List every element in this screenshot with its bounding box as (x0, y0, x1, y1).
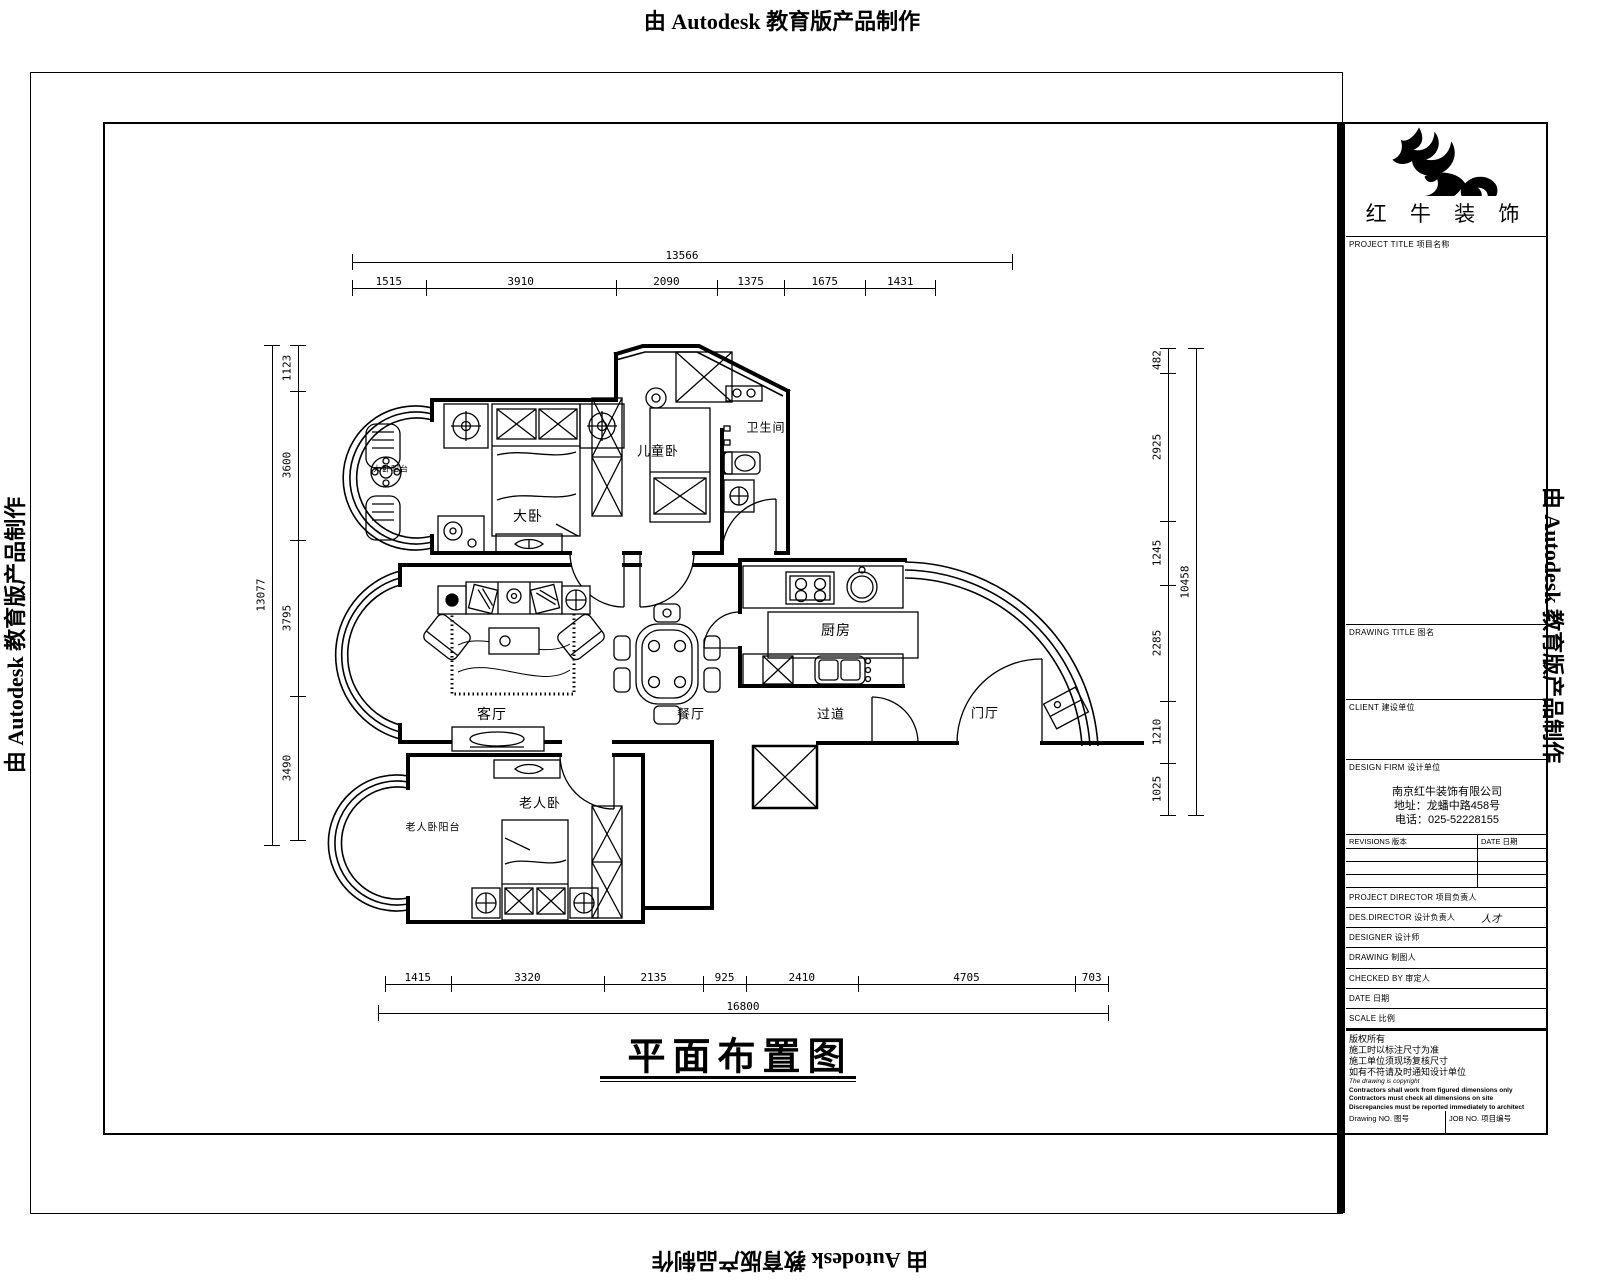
autodesk-stamp-bottom: 由 Autodesk 教育版产品制作 (652, 1246, 928, 1278)
room-label: 客厅 (477, 704, 507, 724)
dimension-tick (935, 280, 936, 296)
note-line: 施工时以标注尺寸为准 (1349, 1045, 1545, 1056)
dimension-value: 3600 (281, 452, 294, 479)
dimension-tick (1160, 763, 1176, 764)
personnel-row: DRAWING 制图人 (1346, 948, 1548, 968)
job-no-label: JOB NO. 项目编号 (1446, 1111, 1548, 1135)
dimension-tick (378, 1005, 379, 1021)
dimension-line (298, 345, 299, 840)
dimension-tick (1160, 815, 1176, 816)
entrance-fittings (1044, 687, 1089, 729)
personnel-label: PROJECT DIRECTOR 项目负责人 (1349, 892, 1477, 903)
dimension-tick (1160, 701, 1176, 702)
room-label: 大卧 (513, 506, 543, 526)
dimension-tick (1160, 521, 1176, 522)
dim-left-segments: 1123360037953490 (288, 345, 308, 840)
dimension-value: 1515 (376, 275, 403, 288)
personnel-label: DATE 日期 (1349, 993, 1389, 1004)
dimension-tick (290, 840, 306, 841)
client-label: CLIENT 建设单位 (1346, 700, 1548, 715)
dimension-line (272, 345, 273, 845)
drawing-no-label: Drawing NO. 图号 (1346, 1111, 1446, 1135)
dimension-value: 2410 (789, 971, 816, 984)
dimension-tick (717, 280, 718, 296)
dimension-tick (784, 280, 785, 296)
personnel-row: PROJECT DIRECTOR 项目负责人 (1346, 888, 1548, 908)
dimension-tick (865, 280, 866, 296)
dimension-tick (1108, 1005, 1109, 1021)
note-line: 施工单位须现场复核尺寸 (1349, 1056, 1545, 1067)
dimension-value: 3320 (514, 971, 541, 984)
dimension-value: 13566 (665, 249, 698, 262)
dimension-tick (290, 391, 306, 392)
dim-right-total: 10458 (1186, 348, 1206, 815)
dimension-tick (1075, 976, 1076, 992)
firm-address: 地址：龙蟠中路458号 (1346, 799, 1548, 813)
dimension-tick (1108, 976, 1109, 992)
note-line: 如有不符请及时通知设计单位 (1349, 1067, 1545, 1078)
dim-left-total: 13077 (262, 345, 282, 845)
dimension-value: 16800 (726, 1000, 759, 1013)
personnel-row: SCALE 比例 (1346, 1009, 1548, 1028)
personnel-row: DESIGNER 设计师 (1346, 928, 1548, 948)
project-title-section: PROJECT TITLE 项目名称 (1346, 237, 1548, 625)
room-label: 大卧阳台 (373, 465, 409, 474)
dimension-value: 1245 (1151, 540, 1164, 567)
personnel-rows: PROJECT DIRECTOR 项目负责人DES.DIRECTOR 设计负责人… (1346, 888, 1548, 1028)
revisions-table (1346, 849, 1548, 888)
drawing-title-label: DRAWING TITLE 图名 (1346, 625, 1548, 640)
dimension-value: 1431 (887, 275, 914, 288)
dimension-tick (290, 696, 306, 697)
dimension-value: 2285 (1151, 630, 1164, 657)
dimension-value: 1123 (281, 355, 294, 382)
dimension-tick (264, 845, 280, 846)
redniu-bull-logo (1372, 126, 1522, 196)
personnel-label: DESIGNER 设计师 (1349, 932, 1419, 943)
dim-bottom-segments: 14153320213592524104705703 (385, 972, 1108, 996)
children-room-furniture (646, 352, 732, 522)
company-name: 红 牛 装 饰 (1346, 198, 1548, 228)
dimension-value: 2925 (1151, 434, 1164, 461)
room-label: 老人卧 (519, 793, 561, 812)
room-label: 儿童卧 (637, 441, 679, 460)
dimension-value: 10458 (1179, 565, 1192, 598)
personnel-label: SCALE 比例 (1349, 1013, 1395, 1024)
drawing-title-underline (600, 1076, 856, 1082)
master-bedroom-furniture (366, 398, 624, 554)
dimension-tick (385, 976, 386, 992)
dim-top-total: 13566 (352, 250, 1012, 274)
dimension-tick (352, 254, 353, 270)
dimension-value: 13077 (255, 578, 268, 611)
dimension-value: 925 (715, 971, 735, 984)
dimension-line (1168, 348, 1169, 815)
personnel-signature: 人才 (1481, 910, 1501, 925)
room-label: 餐厅 (677, 704, 705, 723)
revisions-label: REVISIONS 版本 (1346, 835, 1478, 848)
dimension-tick (290, 345, 306, 346)
room-label: 过道 (817, 704, 845, 723)
dimension-tick (703, 976, 704, 992)
dimension-value: 3910 (507, 275, 534, 288)
dimension-value: 2090 (653, 275, 680, 288)
dimension-tick (264, 345, 280, 346)
logo-section: 红 牛 装 饰 (1346, 122, 1548, 237)
dim-right-segments: 48229251245228512101025 (1158, 348, 1178, 815)
personnel-label: DES.DIRECTOR 设计负责人 (1349, 912, 1455, 923)
project-title-label: PROJECT TITLE 项目名称 (1346, 237, 1548, 252)
room-label: 卫生间 (746, 419, 785, 436)
dimension-tick (746, 976, 747, 992)
dimension-value: 2135 (640, 971, 667, 984)
revision-row (1346, 875, 1548, 888)
design-firm-label: DESIGN FIRM 设计单位 (1346, 760, 1548, 775)
dimension-tick (290, 540, 306, 541)
personnel-row: CHECKED BY 审定人 (1346, 969, 1548, 989)
revision-row (1346, 862, 1548, 875)
note-line: The drawing is copyright (1349, 1078, 1545, 1087)
dimension-tick (451, 976, 452, 992)
dimension-tick (1160, 585, 1176, 586)
dimension-tick (616, 280, 617, 296)
dimension-value: 482 (1151, 350, 1164, 370)
dimension-tick (426, 280, 427, 296)
dim-top-segments: 151539102090137516751431 (352, 276, 935, 300)
dimension-value: 1025 (1151, 776, 1164, 803)
dimension-tick (1188, 348, 1204, 349)
dimension-tick (1160, 348, 1176, 349)
duct-shaft (753, 746, 817, 808)
dimension-line (378, 1013, 1108, 1014)
dimension-tick (352, 280, 353, 296)
dimension-value: 1375 (737, 275, 764, 288)
personnel-label: DRAWING 制图人 (1349, 952, 1416, 963)
autodesk-stamp-top: 由 Autodesk 教育版产品制作 (644, 4, 920, 36)
drawing-title: 平面布置图 (627, 1026, 852, 1081)
design-firm-section: DESIGN FIRM 设计单位 南京红牛装饰有限公司 地址：龙蟠中路458号 … (1346, 760, 1548, 835)
personnel-row: DATE 日期 (1346, 989, 1548, 1009)
dimension-line (352, 262, 1012, 263)
revision-row (1346, 849, 1548, 862)
dimension-value: 4705 (953, 971, 980, 984)
drawing-title-section: DRAWING TITLE 图名 (1346, 625, 1548, 700)
dimension-value: 1675 (812, 275, 839, 288)
room-label: 老人卧阳台 (406, 819, 461, 834)
dimension-tick (1160, 373, 1176, 374)
dimension-line (352, 288, 935, 289)
elderly-bedroom-furniture (472, 760, 622, 920)
revisions-header: REVISIONS 版本 DATE 日期 (1346, 835, 1548, 849)
personnel-label: CHECKED BY 审定人 (1349, 973, 1430, 984)
drawing-number-row: Drawing NO. 图号 JOB NO. 项目编号 (1346, 1111, 1548, 1135)
bathroom-fixtures (724, 386, 762, 512)
dimension-value: 1415 (405, 971, 432, 984)
dim-bottom-total: 16800 (378, 1001, 1108, 1025)
dimension-value: 703 (1082, 971, 1102, 984)
client-section: CLIENT 建设单位 (1346, 700, 1548, 760)
revision-column-divider (1477, 849, 1478, 887)
room-label: 厨房 (821, 620, 851, 640)
dimension-line (1196, 348, 1197, 815)
dimension-value: 3795 (281, 605, 294, 632)
personnel-row: DES.DIRECTOR 设计负责人人才 (1346, 908, 1548, 928)
living-room-furniture (421, 582, 606, 751)
cad-sheet: 由 Autodesk 教育版产品制作 由 Autodesk 教育版产品制作 由 … (0, 0, 1600, 1280)
revision-date-label: DATE 日期 (1478, 835, 1548, 848)
firm-name: 南京红牛装饰有限公司 (1346, 785, 1548, 799)
note-line: Contractors shall work from figured dime… (1349, 1087, 1545, 1096)
title-block: 红 牛 装 饰 PROJECT TITLE 项目名称 DRAWING TITLE… (1346, 122, 1548, 1135)
room-label: 门厅 (971, 703, 999, 722)
dimension-tick (1188, 815, 1204, 816)
titleblock-divider-bar (1337, 122, 1345, 1213)
dimension-tick (604, 976, 605, 992)
dimension-tick (1012, 254, 1013, 270)
dimension-tick (858, 976, 859, 992)
dimension-value: 3490 (281, 755, 294, 782)
note-line: Contractors must check all dimensions on… (1349, 1095, 1545, 1104)
dimension-value: 1210 (1151, 719, 1164, 746)
firm-phone: 电话：025-52228155 (1346, 813, 1548, 827)
copyright-notes: 版权所有施工时以标注尺寸为准施工单位须现场复核尺寸如有不符请及时通知设计单位Th… (1346, 1031, 1548, 1111)
note-line: 版权所有 (1349, 1034, 1545, 1045)
autodesk-stamp-left: 由 Autodesk 教育版产品制作 (0, 497, 30, 773)
